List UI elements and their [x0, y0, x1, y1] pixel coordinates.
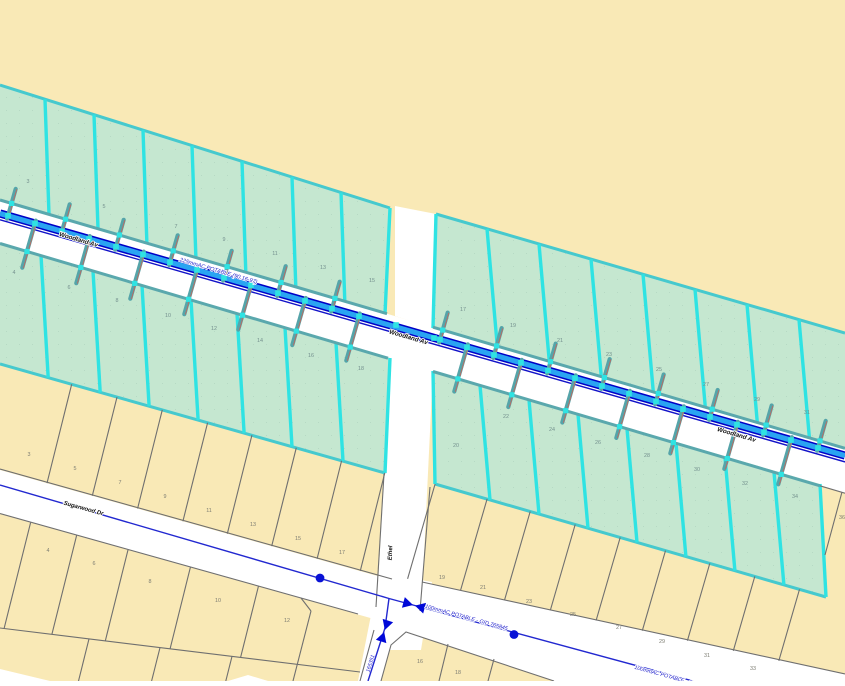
svg-text:3: 3 — [28, 452, 31, 458]
svg-text:25: 25 — [656, 367, 662, 373]
svg-text:27: 27 — [616, 625, 622, 631]
svg-text:5: 5 — [103, 204, 106, 210]
svg-text:7: 7 — [119, 480, 122, 486]
svg-text:7: 7 — [175, 224, 178, 230]
svg-text:16: 16 — [417, 659, 423, 665]
svg-text:22: 22 — [503, 414, 509, 420]
svg-text:6: 6 — [93, 561, 96, 567]
svg-text:13: 13 — [250, 522, 256, 528]
svg-text:29: 29 — [659, 639, 665, 645]
svg-text:26: 26 — [595, 440, 601, 446]
svg-text:14: 14 — [257, 338, 263, 344]
svg-text:27: 27 — [703, 382, 709, 388]
svg-text:4: 4 — [47, 548, 50, 554]
svg-text:18: 18 — [455, 670, 461, 676]
svg-text:8: 8 — [149, 579, 152, 585]
svg-text:25: 25 — [570, 612, 576, 618]
svg-text:31: 31 — [704, 653, 710, 659]
svg-text:17: 17 — [460, 307, 466, 313]
svg-text:33: 33 — [750, 666, 756, 672]
svg-text:17: 17 — [339, 550, 345, 556]
svg-text:20: 20 — [453, 443, 459, 449]
svg-text:15: 15 — [295, 536, 301, 542]
svg-text:10: 10 — [215, 598, 221, 604]
svg-text:15: 15 — [369, 278, 375, 284]
svg-text:23: 23 — [606, 352, 612, 358]
svg-text:30: 30 — [694, 467, 700, 473]
svg-text:21: 21 — [480, 585, 486, 591]
svg-text:4: 4 — [13, 270, 16, 276]
svg-text:11: 11 — [206, 508, 212, 514]
svg-text:24: 24 — [549, 427, 555, 433]
svg-text:34: 34 — [792, 494, 798, 500]
svg-text:8: 8 — [116, 298, 119, 304]
svg-text:19: 19 — [510, 323, 516, 329]
svg-text:32: 32 — [742, 481, 748, 487]
svg-text:12: 12 — [211, 326, 217, 332]
svg-text:13: 13 — [320, 265, 326, 271]
svg-text:5: 5 — [74, 466, 77, 472]
svg-text:6: 6 — [68, 285, 71, 291]
svg-text:16: 16 — [308, 353, 314, 359]
svg-text:Ethel: Ethel — [388, 545, 395, 560]
svg-text:9: 9 — [164, 494, 167, 500]
svg-text:36: 36 — [839, 515, 845, 521]
svg-text:29: 29 — [754, 397, 760, 403]
svg-text:9: 9 — [223, 237, 226, 243]
svg-text:19: 19 — [439, 575, 445, 581]
svg-text:12: 12 — [284, 618, 290, 624]
svg-text:18: 18 — [358, 366, 364, 372]
svg-text:11: 11 — [272, 251, 278, 257]
svg-text:28: 28 — [644, 453, 650, 459]
svg-text:3: 3 — [27, 179, 30, 185]
svg-text:31: 31 — [804, 410, 810, 416]
svg-text:23: 23 — [526, 599, 532, 605]
svg-text:21: 21 — [557, 338, 563, 344]
svg-text:10: 10 — [165, 313, 171, 319]
